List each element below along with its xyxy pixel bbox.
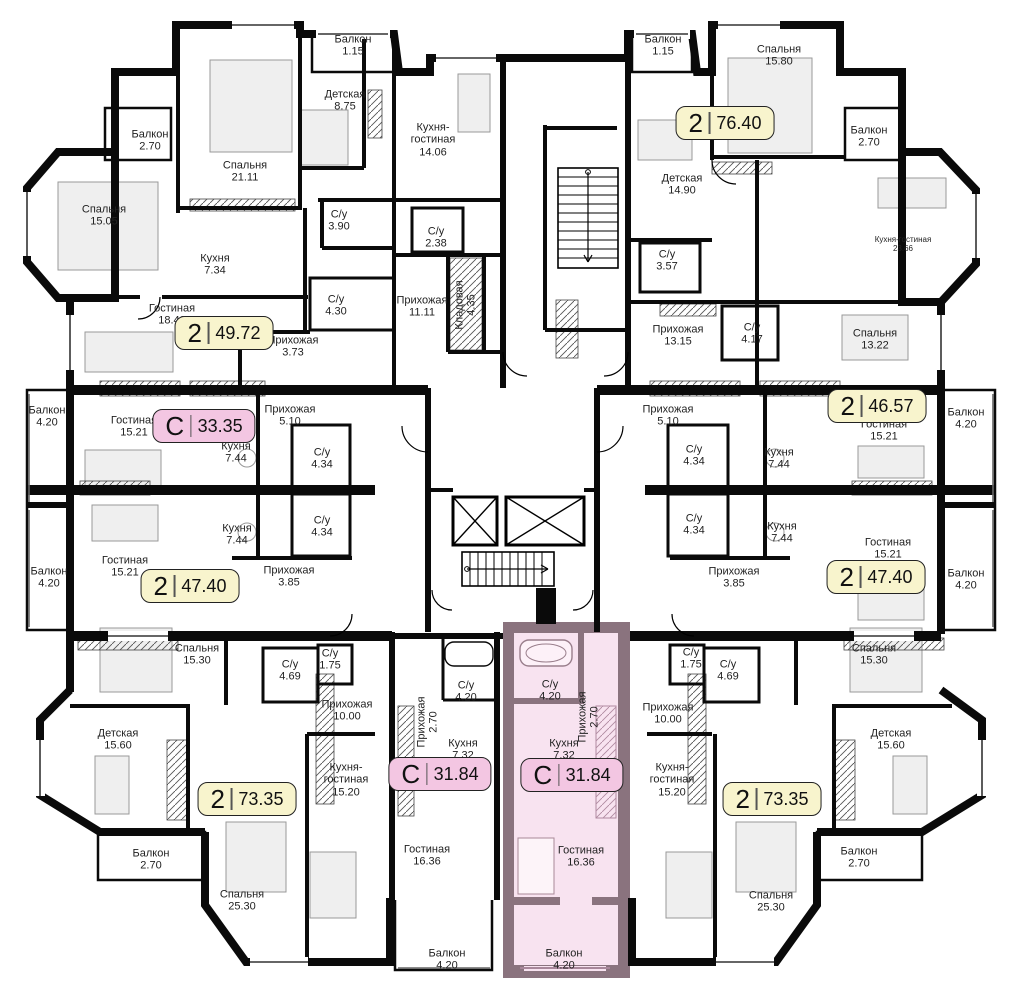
apartment-badge[interactable]: 273.35 [198, 782, 297, 816]
apartment-badge[interactable]: 249.72 [175, 316, 274, 350]
apartment-badge[interactable]: 247.40 [141, 569, 240, 603]
stairs-upper [558, 168, 618, 268]
highlighted-apartment[interactable] [503, 622, 630, 978]
apartment-badge[interactable]: 246.57 [828, 389, 927, 423]
doors [138, 160, 736, 636]
apartment-badge[interactable]: 273.35 [723, 782, 822, 816]
floor-plan-drawing [0, 0, 1022, 1000]
floor-plan: Балкон2.70Спальня21.11Спальня15.05Кухня7… [0, 0, 1022, 1000]
apartment-badge-highlighted[interactable]: С31.84 [520, 758, 623, 792]
elevator-shafts [453, 497, 584, 545]
apartment-badge[interactable]: С31.84 [388, 757, 491, 791]
apartment-badge[interactable]: С33.35 [152, 409, 255, 443]
stairs-lower [462, 552, 554, 586]
apartment-badge[interactable]: 247.40 [827, 560, 926, 594]
apartment-badge[interactable]: 276.40 [676, 106, 775, 140]
